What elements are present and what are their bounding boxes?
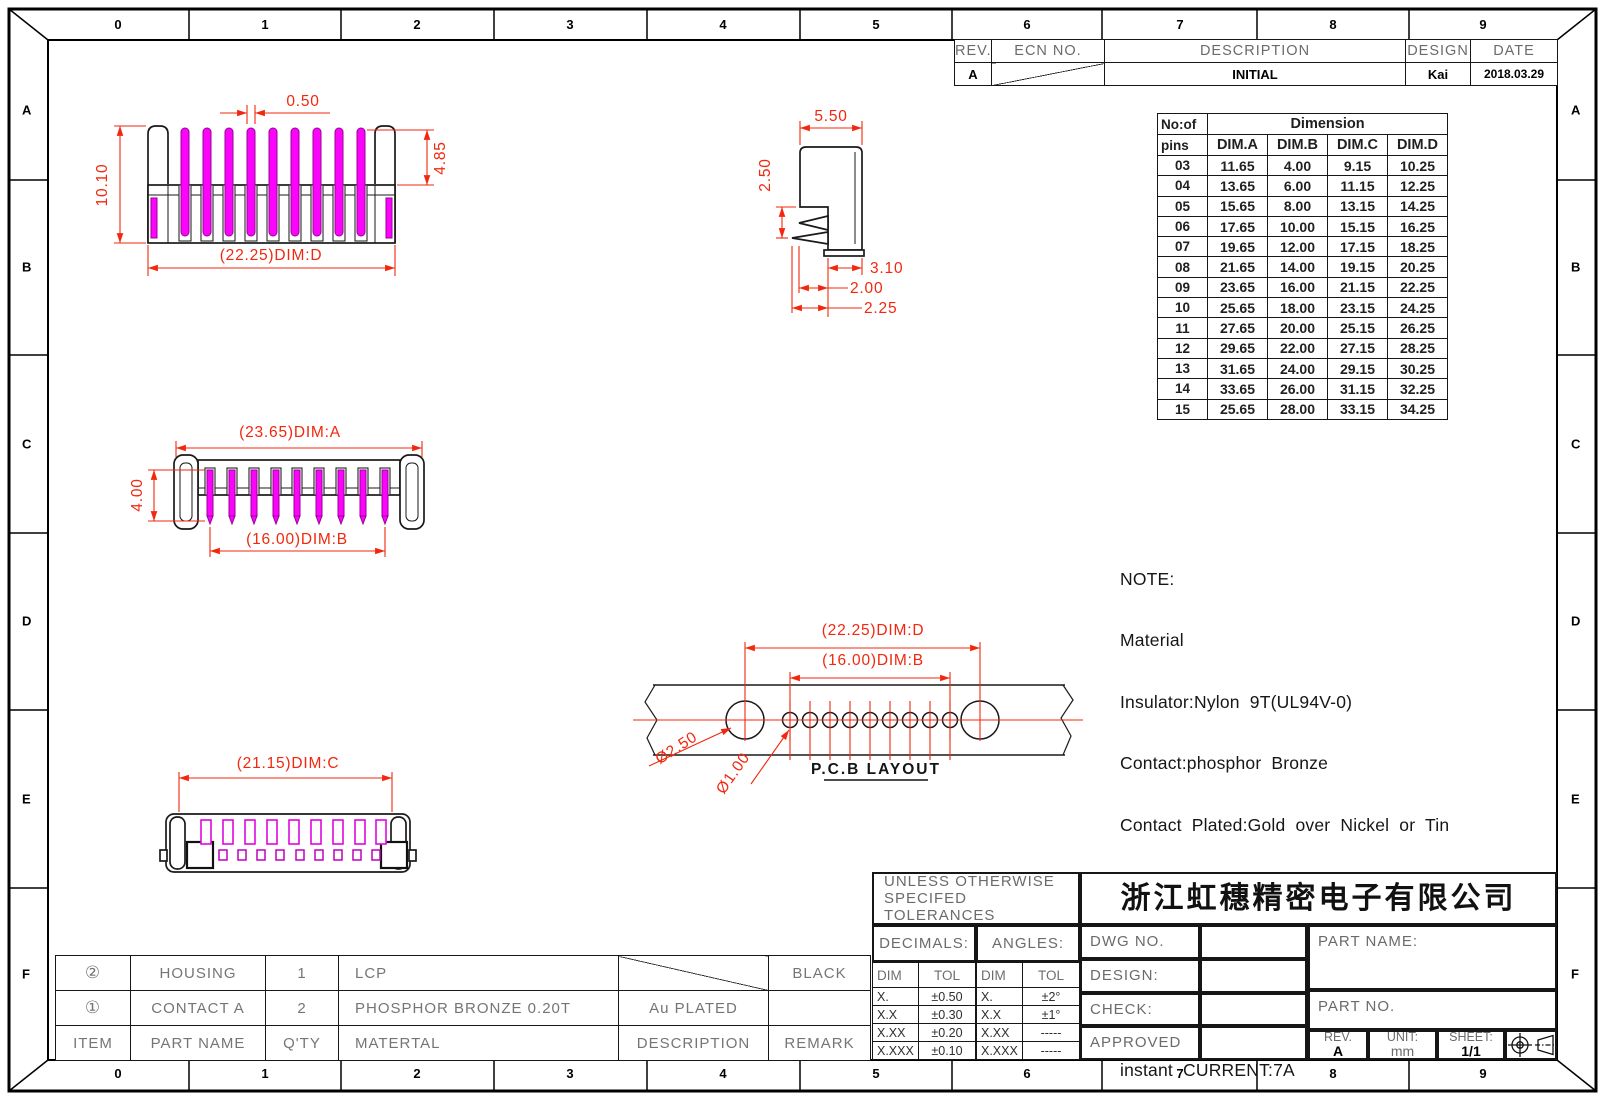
table-cell: 13.65 bbox=[1208, 176, 1268, 196]
dimension-group-header: Dimension bbox=[1208, 114, 1448, 135]
table-row: 0617.6510.0015.1516.25 bbox=[1158, 216, 1448, 236]
table-cell: 21.65 bbox=[1208, 257, 1268, 277]
ecn-empty-cell bbox=[992, 63, 1105, 86]
note-line: NOTE: bbox=[1120, 567, 1555, 592]
table-cell: 33.15 bbox=[1328, 399, 1388, 419]
dim-label-overall-a: (23.65)DIM:A bbox=[239, 424, 341, 441]
table-cell: 23.15 bbox=[1328, 298, 1388, 318]
table-cell: DESCRIPTION bbox=[619, 1026, 769, 1061]
table-cell: ±0.10 bbox=[919, 1042, 976, 1060]
grid-col-label: 0 bbox=[114, 1066, 121, 1081]
decimals-tolerance-table: DIMTOL X.±0.50X.X±0.30X.XX±0.20X.XXX±0.1… bbox=[872, 962, 976, 1060]
approved-value-box bbox=[1200, 1026, 1307, 1060]
table-cell: PHOSPHOR BRONZE 0.20T bbox=[339, 991, 619, 1026]
table-cell: 03 bbox=[1158, 156, 1208, 176]
third-angle-projection-icon bbox=[1507, 1032, 1557, 1059]
table-cell: 29.65 bbox=[1208, 338, 1268, 358]
tolerance-header-line2: SPECIFED TOLERANCES bbox=[884, 890, 1078, 924]
grid-col-label: 1 bbox=[261, 17, 268, 32]
table-cell: 8.00 bbox=[1268, 196, 1328, 216]
table-row: 0719.6512.0017.1518.25 bbox=[1158, 237, 1448, 257]
dim-label-hole-large: Ø2.50 bbox=[653, 729, 701, 768]
dim-label-latch: 2.00 bbox=[850, 280, 883, 297]
table-cell: 09 bbox=[1158, 277, 1208, 297]
grid-row-label: E bbox=[1571, 792, 1580, 807]
table-row: 0311.654.009.1510.25 bbox=[1158, 156, 1448, 176]
table-cell: 19.15 bbox=[1328, 257, 1388, 277]
table-cell: MATERTAL bbox=[339, 1026, 619, 1061]
pcb-layout-drawing: (22.25)DIM:D (16.00)DIM:B Ø2.50 Ø1.00 P.… bbox=[633, 606, 1083, 801]
note-line: Material bbox=[1120, 628, 1555, 653]
table-row: 1229.6522.0027.1528.25 bbox=[1158, 338, 1448, 358]
dwg-no-value-box bbox=[1200, 925, 1307, 959]
table-cell: 18.00 bbox=[1268, 298, 1328, 318]
design-value: Kai bbox=[1406, 63, 1471, 86]
table-cell: 2 bbox=[266, 991, 339, 1026]
table-row: 1127.6520.0025.1526.25 bbox=[1158, 318, 1448, 338]
dwg-no-label: DWG NO. bbox=[1080, 925, 1200, 959]
table-cell: 17.65 bbox=[1208, 216, 1268, 236]
parts-table-rows: ②HOUSING1LCPBLACK①CONTACT A2PHOSPHOR BRO… bbox=[56, 956, 871, 1061]
table-cell: 16.25 bbox=[1388, 216, 1448, 236]
grid-row-label: A bbox=[22, 103, 31, 118]
front-view-drawing: 0.50 10.10 4.85 (22.25)DIM:D bbox=[90, 88, 460, 303]
grid-col-label: 0 bbox=[114, 17, 121, 32]
table-cell: ----- bbox=[1023, 1042, 1080, 1060]
table-cell: ① bbox=[56, 991, 131, 1026]
table-row: X.XXX±0.10 bbox=[873, 1042, 976, 1060]
revision-header-row: REV. ECN NO. DESCRIPTION DESIGN DATE bbox=[955, 40, 1558, 63]
grid-row-label: E bbox=[22, 792, 31, 807]
table-cell: 13 bbox=[1158, 358, 1208, 378]
grid-row-label: C bbox=[22, 437, 31, 452]
grid-row-label: D bbox=[22, 614, 31, 629]
table-cell: 33.65 bbox=[1208, 379, 1268, 399]
table-cell: 10 bbox=[1158, 298, 1208, 318]
top-view-drawing: (23.65)DIM:A 4.00 (16.00)DIM:B bbox=[118, 413, 463, 563]
dim-label-pin-length: 4.00 bbox=[129, 478, 146, 511]
table-cell: ±2° bbox=[1023, 988, 1080, 1006]
table-cell: 12 bbox=[1158, 338, 1208, 358]
table-row: 0413.656.0011.1512.25 bbox=[1158, 176, 1448, 196]
sheet-value: 1/1 bbox=[1461, 1044, 1480, 1059]
check-value-box bbox=[1200, 993, 1307, 1026]
dim-label-left-height: 2.50 bbox=[757, 158, 774, 191]
table-cell: X.XXX bbox=[873, 1042, 919, 1060]
description-value: INITIAL bbox=[1105, 63, 1406, 86]
table-cell: ② bbox=[56, 956, 131, 991]
table-cell: 30.25 bbox=[1388, 358, 1448, 378]
pin-dimension-rows: 0311.654.009.1510.250413.656.0011.1512.2… bbox=[1158, 156, 1448, 420]
dim-b-header: DIM.B bbox=[1268, 135, 1328, 156]
table-cell: 26.00 bbox=[1268, 379, 1328, 399]
angles-tolerance-table: DIMTOL X.±2°X.X±1°X.XX-----X.XXX----- bbox=[976, 962, 1080, 1060]
table-cell: 25.15 bbox=[1328, 318, 1388, 338]
description-header: DESCRIPTION bbox=[1105, 40, 1406, 63]
grid-col-label: 4 bbox=[719, 1066, 726, 1081]
table-cell: PART NAME bbox=[131, 1026, 266, 1061]
tol-column-header: TOL bbox=[1023, 963, 1080, 988]
dim-label-body-height: 10.10 bbox=[94, 164, 111, 207]
table-cell: 18.25 bbox=[1388, 237, 1448, 257]
grid-col-label: 6 bbox=[1023, 17, 1030, 32]
table-cell: ±0.20 bbox=[919, 1024, 976, 1042]
angles-label: ANGLES: bbox=[976, 925, 1080, 962]
table-cell: 20.00 bbox=[1268, 318, 1328, 338]
table-cell: 05 bbox=[1158, 196, 1208, 216]
design-label: DESIGN: bbox=[1080, 959, 1200, 993]
table-cell: 04 bbox=[1158, 176, 1208, 196]
table-cell: 13.15 bbox=[1328, 196, 1388, 216]
table-cell: 11.15 bbox=[1328, 176, 1388, 196]
part-name-cell: PART NAME: bbox=[1307, 925, 1557, 990]
table-cell: 25.65 bbox=[1208, 399, 1268, 419]
table-row: 0515.658.0013.1514.25 bbox=[1158, 196, 1448, 216]
grid-col-label: 8 bbox=[1329, 17, 1336, 32]
table-cell: 28.25 bbox=[1388, 338, 1448, 358]
table-cell: 08 bbox=[1158, 257, 1208, 277]
table-cell: 06 bbox=[1158, 216, 1208, 236]
table-cell: 27.15 bbox=[1328, 338, 1388, 358]
table-row: ②HOUSING1LCPBLACK bbox=[56, 956, 871, 991]
dim-column-header: DIM bbox=[873, 963, 919, 988]
tol-column-header: TOL bbox=[919, 963, 976, 988]
dim-label-hole-small: Ø1.00 bbox=[713, 750, 753, 798]
table-cell: 11.65 bbox=[1208, 156, 1268, 176]
dim-label-overall-c: (21.15)DIM:C bbox=[237, 755, 340, 772]
dim-label-tip: 2.25 bbox=[864, 300, 897, 317]
table-cell: 10.25 bbox=[1388, 156, 1448, 176]
dim-column-header: DIM bbox=[977, 963, 1023, 988]
check-label: CHECK: bbox=[1080, 993, 1200, 1026]
rev-header: REV. bbox=[955, 40, 992, 63]
dim-label-pin-exposed: 4.85 bbox=[432, 141, 449, 174]
table-cell: 23.65 bbox=[1208, 277, 1268, 297]
grid-col-label: 5 bbox=[872, 1066, 879, 1081]
table-cell: 22.00 bbox=[1268, 338, 1328, 358]
parts-table: ②HOUSING1LCPBLACK①CONTACT A2PHOSPHOR BRO… bbox=[55, 955, 871, 1061]
table-row: 1433.6526.0031.1532.25 bbox=[1158, 379, 1448, 399]
ecn-header: ECN NO. bbox=[992, 40, 1105, 63]
table-cell: 10.00 bbox=[1268, 216, 1328, 236]
projection-symbol-cell bbox=[1505, 1030, 1557, 1060]
table-cell: REMARK bbox=[769, 1026, 871, 1061]
table-cell: 11 bbox=[1158, 318, 1208, 338]
table-cell: 25.65 bbox=[1208, 298, 1268, 318]
grid-row-label: B bbox=[1571, 260, 1580, 275]
table-cell: 15.15 bbox=[1328, 216, 1388, 236]
note-line: instant CURRENT:7A bbox=[1120, 1058, 1555, 1083]
table-row: 1525.6528.0033.1534.25 bbox=[1158, 399, 1448, 419]
table-cell: 32.25 bbox=[1388, 379, 1448, 399]
pin-dimension-table: No:of Dimension pins DIM.A DIM.B DIM.C D… bbox=[1157, 113, 1448, 420]
date-header: DATE bbox=[1471, 40, 1558, 63]
tolerance-header: UNLESS OTHERWISE SPECIFED TOLERANCES bbox=[872, 872, 1080, 925]
table-row: 1331.6524.0029.1530.25 bbox=[1158, 358, 1448, 378]
grid-col-label: 9 bbox=[1479, 17, 1486, 32]
table-cell: Q'TY bbox=[266, 1026, 339, 1061]
table-cell: ITEM bbox=[56, 1026, 131, 1061]
table-cell: 22.25 bbox=[1388, 277, 1448, 297]
table-row: 0821.6514.0019.1520.25 bbox=[1158, 257, 1448, 277]
sheet-cell: SHEET:1/1 bbox=[1437, 1030, 1505, 1060]
drawing-sheet: 0 1 2 3 4 5 6 7 8 9 0 1 2 3 4 5 6 7 8 9 … bbox=[0, 0, 1605, 1100]
table-row: X.XXX----- bbox=[977, 1042, 1080, 1060]
dim-c-header: DIM.C bbox=[1328, 135, 1388, 156]
table-row: X.XX±0.20 bbox=[873, 1024, 976, 1042]
table-cell: 4.00 bbox=[1268, 156, 1328, 176]
table-cell: ±0.30 bbox=[919, 1006, 976, 1024]
table-cell: 15 bbox=[1158, 399, 1208, 419]
table-cell: X. bbox=[873, 988, 919, 1006]
part-no-cell: PART NO. bbox=[1307, 990, 1557, 1030]
table-cell: ----- bbox=[1023, 1024, 1080, 1042]
pins-header-bottom: pins bbox=[1158, 135, 1208, 156]
grid-row-label: C bbox=[1571, 437, 1580, 452]
unit-value: mm bbox=[1391, 1044, 1414, 1059]
table-cell: BLACK bbox=[769, 956, 871, 991]
table-cell: 31.65 bbox=[1208, 358, 1268, 378]
table-cell: 21.15 bbox=[1328, 277, 1388, 297]
revision-entry-row: A INITIAL Kai 2018.03.29 bbox=[955, 63, 1558, 86]
table-cell bbox=[769, 991, 871, 1026]
table-cell: 12.25 bbox=[1388, 176, 1448, 196]
pins-header-top: No:of bbox=[1158, 114, 1208, 135]
dim-label-overall-d: (22.25)DIM:D bbox=[220, 247, 323, 264]
table-cell: CONTACT A bbox=[131, 991, 266, 1026]
note-line: Insulator:Nylon 9T(UL94V-0) bbox=[1120, 690, 1555, 715]
table-cell: X. bbox=[977, 988, 1023, 1006]
rev-cell: REV.A bbox=[1307, 1030, 1368, 1060]
grid-col-label: 3 bbox=[566, 17, 573, 32]
table-cell: Au PLATED bbox=[619, 991, 769, 1026]
table-cell: 29.15 bbox=[1328, 358, 1388, 378]
table-cell: 07 bbox=[1158, 237, 1208, 257]
decimals-label: DECIMALS: bbox=[872, 925, 976, 962]
table-cell: 24.00 bbox=[1268, 358, 1328, 378]
tolerance-header-line1: UNLESS OTHERWISE bbox=[884, 873, 1078, 890]
table-row: 0923.6516.0021.1522.25 bbox=[1158, 277, 1448, 297]
side-view-drawing: 5.50 2.50 3.10 2.00 2.25 bbox=[742, 95, 957, 320]
table-cell: 19.65 bbox=[1208, 237, 1268, 257]
table-cell: X.XXX bbox=[977, 1042, 1023, 1060]
table-cell: X.XX bbox=[873, 1024, 919, 1042]
table-cell: 6.00 bbox=[1268, 176, 1328, 196]
table-cell: 27.65 bbox=[1208, 318, 1268, 338]
grid-col-label: 7 bbox=[1176, 17, 1183, 32]
note-line: Contact:phosphor Bronze bbox=[1120, 751, 1555, 776]
grid-col-label: 2 bbox=[413, 1066, 420, 1081]
grid-col-label: 4 bbox=[719, 17, 726, 32]
table-cell: 34.25 bbox=[1388, 399, 1448, 419]
company-name: 浙江虹穗精密电子有限公司 bbox=[1080, 872, 1557, 925]
bottom-view-drawing: (21.15)DIM:C bbox=[148, 752, 443, 882]
table-cell: 24.25 bbox=[1388, 298, 1448, 318]
table-cell: 15.65 bbox=[1208, 196, 1268, 216]
angles-rows: X.±2°X.X±1°X.XX-----X.XXX----- bbox=[977, 988, 1080, 1060]
table-row: X.±2° bbox=[977, 988, 1080, 1006]
dim-label-pin-width: 0.50 bbox=[286, 93, 319, 110]
table-row: X.X±0.30 bbox=[873, 1006, 976, 1024]
dim-label-pitch-span: (16.00)DIM:B bbox=[246, 531, 348, 548]
design-value-box bbox=[1200, 959, 1307, 993]
table-cell: 9.15 bbox=[1328, 156, 1388, 176]
table-row: X.±0.50 bbox=[873, 988, 976, 1006]
table-cell: X.XX bbox=[977, 1024, 1023, 1042]
grid-row-label: A bbox=[1571, 103, 1580, 118]
grid-row-label: B bbox=[22, 260, 31, 275]
grid-row-label: D bbox=[1571, 614, 1580, 629]
table-cell: HOUSING bbox=[131, 956, 266, 991]
table-row: 1025.6518.0023.1524.25 bbox=[1158, 298, 1448, 318]
table-cell bbox=[619, 956, 769, 991]
table-cell: 12.00 bbox=[1268, 237, 1328, 257]
dim-label-pcb-span-d: (22.25)DIM:D bbox=[822, 622, 925, 639]
dim-a-header: DIM.A bbox=[1208, 135, 1268, 156]
table-row: X.X±1° bbox=[977, 1006, 1080, 1024]
table-row: ①CONTACT A2PHOSPHOR BRONZE 0.20TAu PLATE… bbox=[56, 991, 871, 1026]
unit-cell: UNIT:mm bbox=[1368, 1030, 1437, 1060]
dim-label-top-width: 5.50 bbox=[814, 108, 847, 125]
revision-table: REV. ECN NO. DESCRIPTION DESIGN DATE A I… bbox=[954, 39, 1558, 86]
dim-label-foot: 3.10 bbox=[870, 260, 903, 277]
rev-value: A bbox=[1333, 1044, 1343, 1059]
table-cell: 14.00 bbox=[1268, 257, 1328, 277]
pcb-layout-caption: P.C.B LAYOUT bbox=[811, 761, 941, 778]
table-cell: 17.15 bbox=[1328, 237, 1388, 257]
note-line: Contact Plated:Gold over Nickel or Tin bbox=[1120, 813, 1555, 838]
rev-value: A bbox=[955, 63, 992, 86]
decimals-rows: X.±0.50X.X±0.30X.XX±0.20X.XXX±0.10 bbox=[873, 988, 976, 1060]
table-cell: 16.00 bbox=[1268, 277, 1328, 297]
grid-col-label: 1 bbox=[261, 1066, 268, 1081]
table-cell: X.X bbox=[977, 1006, 1023, 1024]
table-cell: 1 bbox=[266, 956, 339, 991]
table-cell: 31.15 bbox=[1328, 379, 1388, 399]
table-cell: 14.25 bbox=[1388, 196, 1448, 216]
grid-col-label: 5 bbox=[872, 17, 879, 32]
table-cell: 14 bbox=[1158, 379, 1208, 399]
table-cell: X.X bbox=[873, 1006, 919, 1024]
date-value: 2018.03.29 bbox=[1471, 63, 1558, 86]
grid-col-label: 6 bbox=[1023, 1066, 1030, 1081]
dim-d-header: DIM.D bbox=[1388, 135, 1448, 156]
grid-row-label: F bbox=[22, 967, 30, 982]
table-cell: 26.25 bbox=[1388, 318, 1448, 338]
grid-row-label: F bbox=[1571, 967, 1579, 982]
table-cell: 28.00 bbox=[1268, 399, 1328, 419]
grid-col-label: 2 bbox=[413, 17, 420, 32]
dim-label-pcb-span-b: (16.00)DIM:B bbox=[822, 652, 924, 669]
table-row: X.XX----- bbox=[977, 1024, 1080, 1042]
table-cell: ±1° bbox=[1023, 1006, 1080, 1024]
table-cell: ±0.50 bbox=[919, 988, 976, 1006]
table-row: ITEMPART NAMEQ'TYMATERTALDESCRIPTIONREMA… bbox=[56, 1026, 871, 1061]
table-cell: LCP bbox=[339, 956, 619, 991]
design-header: DESIGN bbox=[1406, 40, 1471, 63]
table-cell: 20.25 bbox=[1388, 257, 1448, 277]
approved-label: APPROVED bbox=[1080, 1026, 1200, 1060]
grid-col-label: 3 bbox=[566, 1066, 573, 1081]
